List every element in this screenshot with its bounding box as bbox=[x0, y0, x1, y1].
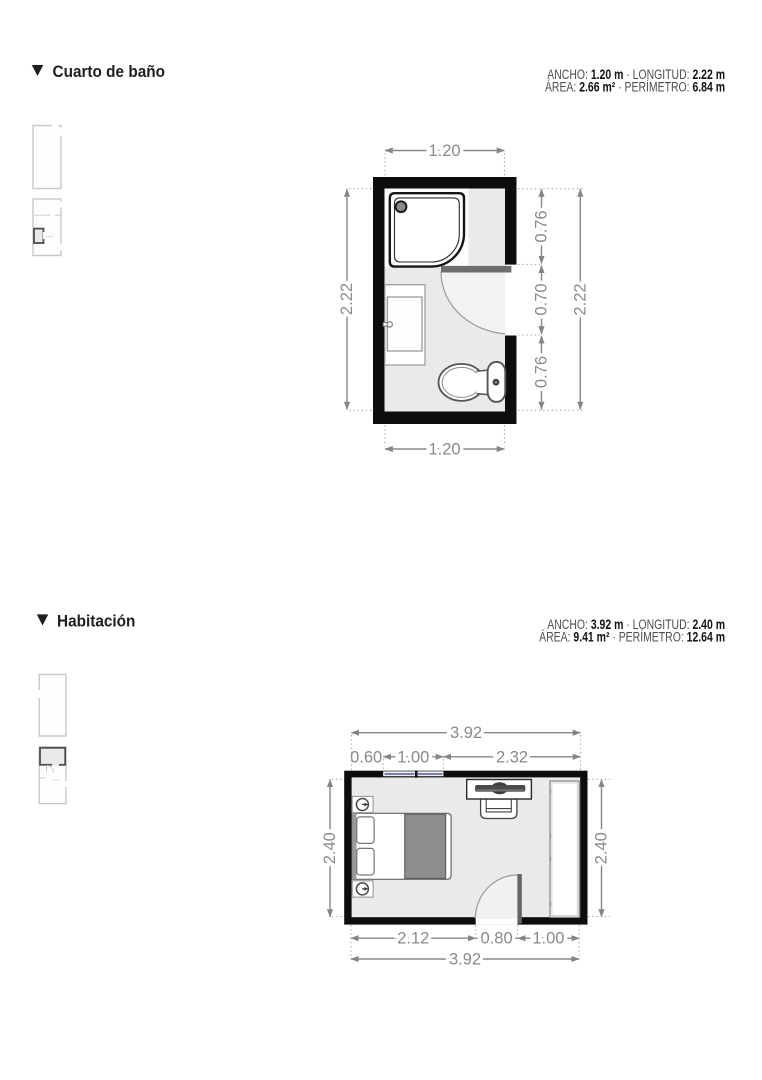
svg-text:0.80: 0.80 bbox=[481, 930, 513, 948]
svg-text:1.20: 1.20 bbox=[428, 142, 460, 160]
svg-text:0.60: 0.60 bbox=[350, 748, 382, 766]
svg-text:2.32: 2.32 bbox=[496, 748, 528, 766]
svg-text:2.12: 2.12 bbox=[397, 930, 429, 948]
svg-text:2.40: 2.40 bbox=[593, 832, 611, 864]
svg-text:3.92: 3.92 bbox=[450, 724, 482, 742]
svg-text:2.22: 2.22 bbox=[338, 283, 356, 315]
svg-text:2.22: 2.22 bbox=[571, 283, 589, 315]
svg-text:0.76: 0.76 bbox=[533, 210, 551, 242]
svg-text:Habitación: Habitación bbox=[57, 613, 135, 631]
svg-text:Cuarto de baño: Cuarto de baño bbox=[53, 64, 166, 82]
svg-text:1.00: 1.00 bbox=[397, 748, 429, 766]
svg-text:ÁREA: 2.66 m² · PERÍMETRO: 6.8: ÁREA: 2.66 m² · PERÍMETRO: 6.84 m bbox=[545, 78, 725, 95]
svg-text:3.92: 3.92 bbox=[449, 951, 481, 969]
svg-text:0.70: 0.70 bbox=[533, 283, 551, 315]
svg-text:1.00: 1.00 bbox=[532, 930, 564, 948]
svg-text:2.40: 2.40 bbox=[321, 832, 339, 864]
svg-text:ÁREA: 9.41 m² · PERÍMETRO: 12.: ÁREA: 9.41 m² · PERÍMETRO: 12.64 m bbox=[539, 628, 725, 645]
svg-text:1.20: 1.20 bbox=[428, 441, 460, 459]
svg-text:0.76: 0.76 bbox=[533, 356, 551, 388]
